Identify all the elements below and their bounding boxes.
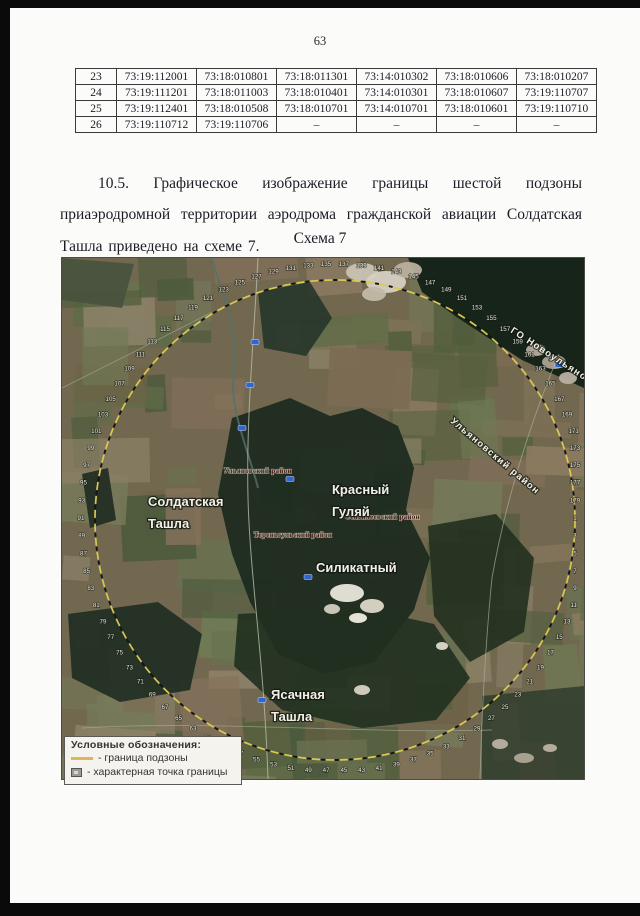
table-cell: – — [357, 117, 437, 133]
boundary-point-number: 95 — [80, 480, 87, 487]
table-row: 2573:19:11240173:18:01050873:18:01070173… — [76, 101, 597, 117]
boundary-point-number: 109 — [124, 366, 135, 373]
boundary-point-number: 65 — [175, 715, 182, 722]
boundary-point-number: 171 — [569, 428, 580, 435]
figure-caption: Схема 7 — [0, 230, 640, 248]
label-soldatskaya-tashla: Солдатская — [148, 494, 224, 509]
legend-item-label: - характерная точка границы — [87, 766, 227, 778]
boundary-point-number: 177 — [570, 480, 581, 487]
road-marker-icon — [251, 340, 259, 345]
boundary-point-number: 97 — [83, 462, 90, 469]
boundary-point-number: 67 — [162, 704, 169, 711]
boundary-point-number: 69 — [149, 691, 156, 698]
boundary-point-number: 147 — [425, 280, 436, 287]
table-cell: – — [277, 117, 357, 133]
boundary-point-number: 77 — [107, 634, 114, 641]
boundary-point-number: 149 — [441, 287, 452, 294]
table-cell: 73:19:110707 — [517, 85, 597, 101]
table-cell: 73:18:010606 — [437, 69, 517, 85]
boundary-point-number: 21 — [526, 678, 533, 685]
boundary-point-number: 151 — [457, 295, 468, 302]
page-number: 63 — [0, 34, 640, 49]
boundary-point-number: 73 — [126, 664, 133, 671]
boundary-point-number: 15 — [556, 634, 563, 641]
boundary-point-number: 169 — [562, 412, 573, 419]
boundary-point-number: 75 — [116, 650, 123, 657]
boundary-point-number: 145 — [408, 273, 419, 280]
coordinate-table: 2373:19:11200173:18:01080173:18:01130173… — [75, 68, 597, 133]
table-cell: 23 — [76, 69, 117, 85]
boundary-point-number: 115 — [160, 326, 170, 333]
boundary-point-number: 23 — [514, 691, 521, 698]
boundary-point-number: 155 — [486, 315, 497, 322]
boundary-point-number: 123 — [219, 287, 230, 294]
boundary-point-number: 43 — [358, 767, 365, 774]
table-cell: 73:18:010701 — [277, 101, 357, 117]
boundary-point-number: 3 — [573, 533, 577, 540]
scan-edge-left — [0, 0, 10, 916]
boundary-point-number: 173 — [570, 445, 581, 452]
boundary-point-number: 143 — [391, 269, 402, 276]
boundary-point-number: 31 — [459, 735, 466, 742]
table-cell: 73:14:010301 — [357, 85, 437, 101]
scheme-7-map: 1357911131517192123252729313335373941434… — [62, 258, 584, 779]
scan-edge-top — [0, 0, 640, 8]
boundary-point-number: 125 — [235, 280, 246, 287]
boundary-point-number: 175 — [570, 462, 581, 469]
table-cell: 73:18:010401 — [277, 85, 357, 101]
boundary-point-number: 81 — [93, 602, 100, 609]
boundary-point-number: 91 — [78, 515, 85, 522]
boundary-point-number: 7 — [573, 568, 577, 575]
label-krasny-gulyay: Красный — [332, 482, 389, 497]
boundary-point-number: 55 — [253, 757, 260, 764]
boundary-point-number: 19 — [537, 664, 544, 671]
boundary-point-number: 49 — [305, 767, 312, 774]
label-krasny-gulyay: Гуляй — [332, 504, 370, 519]
table-cell: 73:14:010302 — [357, 69, 437, 85]
road-marker-icon — [286, 477, 294, 482]
boundary-point-number: 25 — [502, 704, 509, 711]
boundary-point-number: 33 — [443, 743, 450, 750]
boundary-point-number: 117 — [174, 315, 184, 322]
table-cell: – — [437, 117, 517, 133]
legend-title: Условные обозначения: — [71, 739, 237, 751]
boundary-point-number: 113 — [147, 339, 157, 346]
boundary-point-number: 53 — [270, 762, 277, 769]
table-cell: 73:18:010508 — [197, 101, 277, 117]
label-silikatny: Силикатный — [316, 560, 397, 575]
boundary-point-number: 5 — [573, 550, 577, 557]
boundary-point-number: 163 — [535, 366, 546, 373]
table-row: 2373:19:11200173:18:01080173:18:01130173… — [76, 69, 597, 85]
boundary-point-number: 153 — [472, 304, 483, 311]
scanned-page: 63 2373:19:11200173:18:01080173:18:01130… — [0, 0, 640, 916]
table-cell: 73:19:110706 — [197, 117, 277, 133]
boundary-point-number: 135 — [321, 261, 332, 268]
boundary-point-number: 41 — [376, 765, 383, 772]
table-cell: 73:18:010207 — [517, 69, 597, 85]
section-paragraph: 10.5. Графическое изображение границы ше… — [60, 168, 582, 263]
boundary-point-number: 179 — [570, 497, 581, 504]
boundary-point-number: 111 — [136, 352, 146, 359]
table-cell: 73:19:110712 — [117, 117, 197, 133]
boundary-point-number: 99 — [87, 445, 94, 452]
boundary-point-number: 101 — [91, 428, 102, 435]
boundary-point-number: 1 — [573, 515, 577, 522]
table-cell: 73:18:010601 — [437, 101, 517, 117]
boundary-point-number: 9 — [573, 585, 577, 592]
boundary-point-number: 17 — [547, 650, 554, 657]
boundary-point-number: 139 — [356, 262, 367, 269]
table-cell: 73:19:110710 — [517, 101, 597, 117]
label-terengulsky-rayon: Тереньгульский район — [254, 532, 332, 539]
boundary-point-number: 45 — [340, 767, 347, 774]
table-cell: 73:18:011003 — [197, 85, 277, 101]
label-ulyanovsky-rayon: Ульяновский район — [224, 468, 292, 475]
road-marker-icon — [238, 426, 246, 431]
boundary-line-icon — [71, 757, 93, 760]
boundary-point-number: 71 — [137, 678, 144, 685]
boundary-point-number: 39 — [393, 762, 400, 769]
boundary-point-number: 141 — [374, 265, 385, 272]
legend-item-boundary: - граница подзоны — [71, 751, 237, 765]
boundary-point-number: 13 — [564, 618, 571, 625]
road-marker-icon — [246, 383, 254, 388]
boundary-point-number: 165 — [545, 380, 556, 387]
boundary-point-number: 37 — [410, 757, 417, 764]
table-cell: 26 — [76, 117, 117, 133]
label-yasachnaya-tashla: Ясачная — [271, 687, 325, 702]
legend-item-label: - граница подзоны — [98, 752, 188, 764]
boundary-point-number: 129 — [268, 269, 279, 276]
table-cell: 24 — [76, 85, 117, 101]
table-cell: 73:19:112401 — [117, 101, 197, 117]
boundary-point-number: 107 — [114, 380, 125, 387]
boundary-point-number: 35 — [427, 751, 434, 758]
label-soldatskaya-tashla: Ташла — [148, 516, 190, 531]
boundary-point-number: 83 — [87, 585, 94, 592]
label-yasachnaya-tashla: Ташла — [271, 709, 313, 724]
boundary-point-number: 103 — [98, 412, 109, 419]
boundary-point-number: 87 — [80, 550, 87, 557]
table-cell: 73:14:010701 — [357, 101, 437, 117]
table-row: 2673:19:11071273:19:110706–––– — [76, 117, 597, 133]
boundary-point-number: 47 — [323, 767, 330, 774]
scan-edge-bottom — [0, 903, 640, 916]
boundary-point-number: 105 — [106, 396, 117, 403]
boundary-point-number: 161 — [524, 352, 535, 359]
boundary-point-number: 119 — [188, 304, 198, 311]
boundary-point-number: 63 — [190, 726, 197, 733]
boundary-point-number: 11 — [570, 602, 577, 609]
boundary-point-number: 79 — [100, 618, 107, 625]
road-marker-icon — [258, 698, 266, 703]
map-legend: Условные обозначения: - граница подзоны … — [64, 736, 242, 785]
boundary-point-number: 89 — [78, 533, 85, 540]
table-cell: 73:19:112001 — [117, 69, 197, 85]
table-cell: – — [517, 117, 597, 133]
boundary-point-number: 93 — [78, 497, 85, 504]
table-cell: 73:18:011301 — [277, 69, 357, 85]
boundary-point-number: 137 — [339, 261, 350, 268]
boundary-point-number: 51 — [287, 765, 294, 772]
boundary-point-number: 127 — [251, 273, 262, 280]
table-row: 2473:19:11120173:18:01100373:18:01040173… — [76, 85, 597, 101]
boundary-point-number: 27 — [488, 715, 495, 722]
boundary-point-number: 121 — [203, 295, 214, 302]
boundary-point-number: 167 — [554, 396, 565, 403]
boundary-point-icon — [71, 768, 82, 777]
boundary-point-number: 85 — [83, 568, 90, 575]
table-cell: 73:18:010801 — [197, 69, 277, 85]
satellite-map: 1357911131517192123252729313335373941434… — [62, 258, 584, 779]
legend-item-point: - характерная точка границы — [71, 765, 237, 779]
boundary-point-number: 131 — [286, 265, 297, 272]
table-cell: 25 — [76, 101, 117, 117]
boundary-point-number: 29 — [474, 726, 481, 733]
boundary-point-number: 133 — [303, 262, 314, 269]
road-marker-icon — [304, 575, 312, 580]
table-cell: 73:19:111201 — [117, 85, 197, 101]
table-cell: 73:18:010607 — [437, 85, 517, 101]
